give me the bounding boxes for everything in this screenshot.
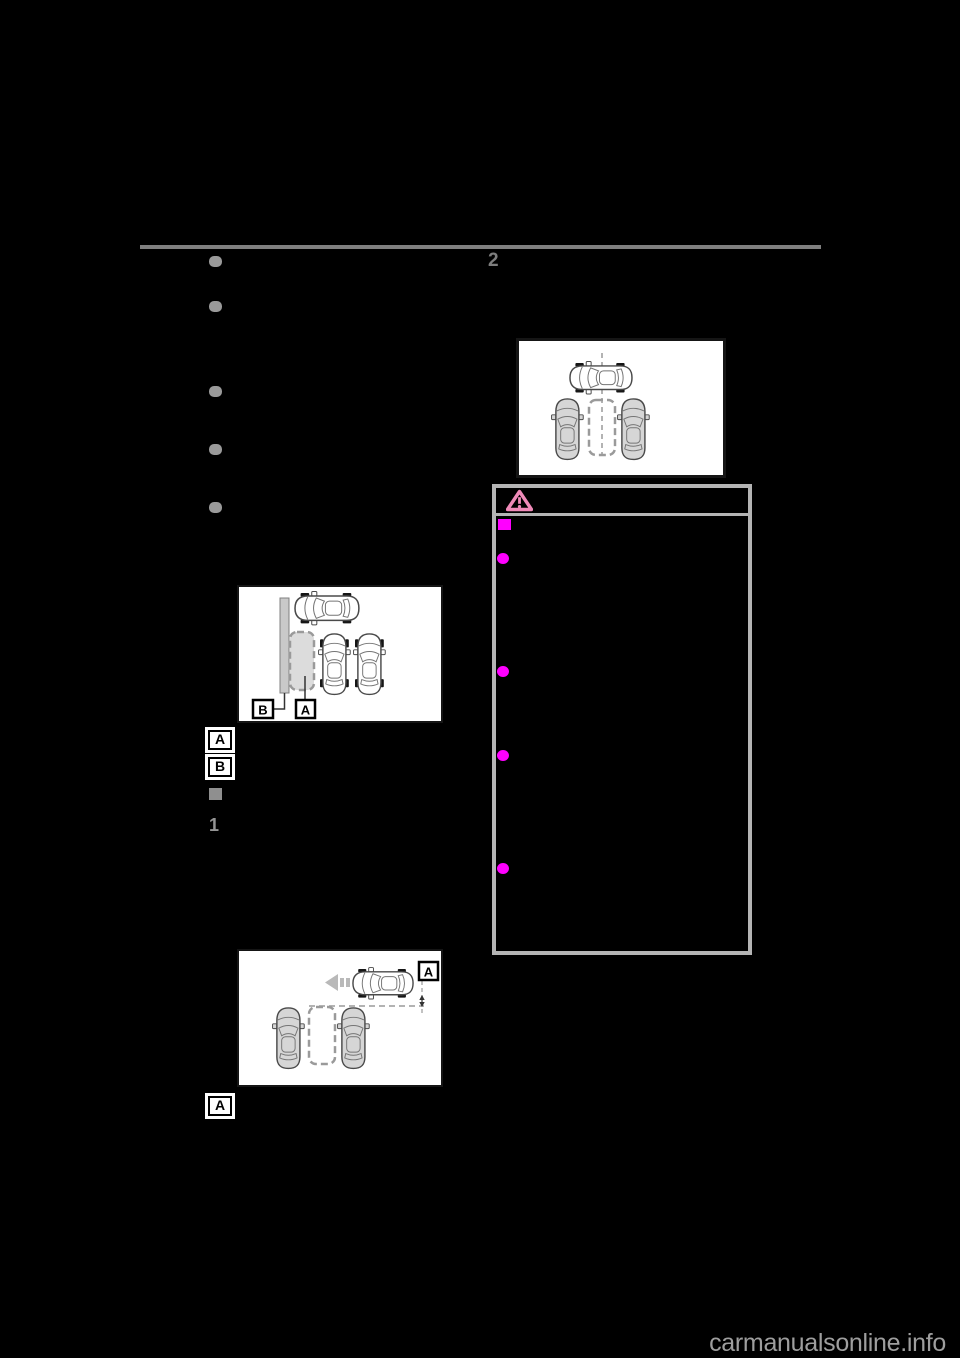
step-number-1: 1 — [209, 816, 219, 834]
watermark-text: carmanualsonline.info — [709, 1329, 946, 1358]
parked-car-top-view — [552, 399, 584, 459]
caution-header — [496, 488, 748, 516]
parking-space-dashed-outline — [290, 632, 314, 690]
margin-label-b: B — [208, 757, 232, 777]
caution-circle-bullet — [497, 553, 509, 564]
svg-text:A: A — [301, 703, 311, 718]
own-vehicle-top-view — [353, 968, 413, 999]
section-square-marker — [209, 788, 222, 800]
figure-vehicle-centered-over-space — [516, 338, 726, 478]
parked-car-top-view — [319, 634, 351, 694]
warning-triangle-icon — [506, 489, 533, 512]
caution-section-square-bullet — [498, 519, 511, 530]
parked-car-top-view — [338, 1008, 370, 1068]
parked-car-top-view — [618, 399, 650, 459]
figure1-label-b: B — [253, 700, 273, 718]
own-vehicle-top-view — [570, 362, 632, 394]
caution-circle-bullet — [497, 863, 509, 874]
margin-label-a: A — [208, 730, 232, 750]
column-divider-rule — [140, 245, 821, 249]
travel-direction-arrow — [325, 974, 350, 991]
list-bullet — [209, 444, 222, 455]
parked-car-top-view — [354, 634, 386, 694]
figure1-label-a: A — [296, 700, 315, 718]
distance-double-arrow — [419, 995, 424, 1007]
caution-circle-bullet — [497, 750, 509, 761]
list-bullet — [209, 502, 222, 513]
step-number-2: 2 — [488, 251, 499, 270]
figure-parking-space-beside-wall: B A — [237, 585, 443, 723]
label-b-connector-line — [273, 693, 285, 709]
manual-page: 2 1 — [0, 0, 960, 1358]
figure-vehicle-passing-space: A — [237, 949, 443, 1087]
figure3-label-a: A — [419, 962, 438, 980]
svg-text:A: A — [424, 965, 434, 980]
own-vehicle-top-view — [295, 591, 359, 624]
list-bullet — [209, 386, 222, 397]
parked-car-top-view — [273, 1008, 305, 1068]
list-bullet — [209, 256, 222, 267]
parking-space-dashed-outline — [309, 1007, 335, 1064]
caution-box — [492, 484, 752, 955]
wall-bar — [280, 598, 289, 693]
list-bullet — [209, 301, 222, 312]
margin-label-a-2: A — [208, 1096, 232, 1116]
svg-text:B: B — [258, 703, 267, 718]
caution-circle-bullet — [497, 666, 509, 677]
